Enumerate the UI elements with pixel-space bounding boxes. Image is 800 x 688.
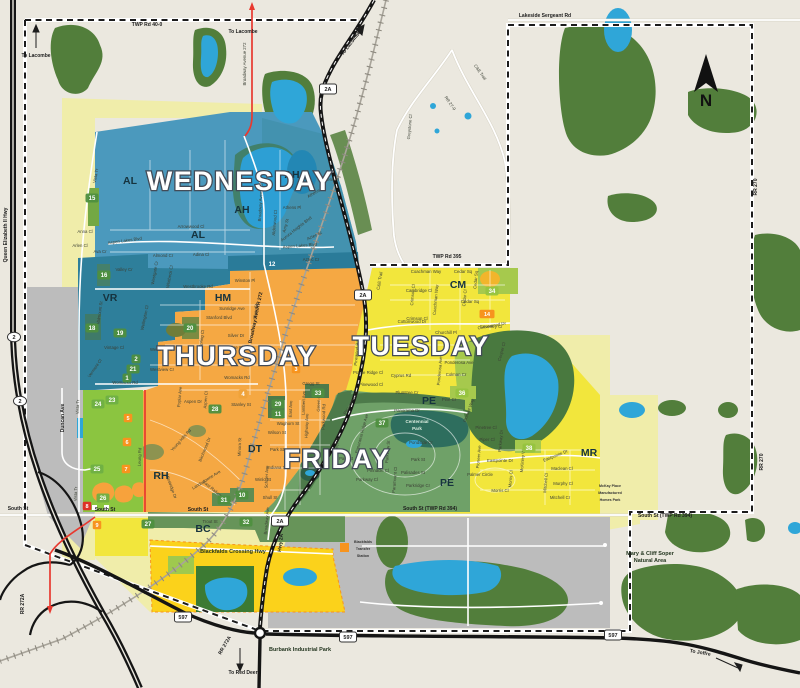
facility-badge-number: 7: [124, 467, 127, 473]
street-label: Ava Cr: [93, 249, 107, 254]
place-label: Station: [357, 554, 369, 558]
park-badge-number: 26: [100, 496, 107, 502]
park-badge-number: 37: [379, 421, 386, 427]
highway-shield-number: 2A: [359, 293, 366, 299]
place-label: Transfer: [356, 547, 371, 551]
street-label: Murphy Cl: [553, 481, 573, 486]
road-label: RR 270: [759, 453, 765, 470]
street-label: Coachman Way: [411, 269, 442, 274]
park-badge-number: 36: [459, 391, 466, 397]
map-canvas: N Vista TrAnna ClArlen ClAva CrAspen Lak…: [0, 0, 800, 688]
place-label: Centennial: [405, 419, 428, 424]
park-badge-number: 32: [243, 520, 250, 526]
street-label: Pine Cr: [442, 397, 457, 402]
zone-yellow-southwest: [95, 518, 148, 556]
road-label: South St: [95, 507, 116, 513]
street-label: Pinewood Cl: [359, 382, 383, 387]
street-label: Westbrooke Rd: [183, 284, 213, 289]
street-label: Silver Dr: [228, 333, 245, 338]
road-label: TWP Rd 40-0: [132, 22, 163, 28]
street-label: Piper Cl: [479, 437, 494, 442]
street-label: Palisades St: [401, 470, 426, 475]
place-label: Burbank Industrial Park: [269, 647, 332, 653]
area-code-label: PE: [440, 477, 454, 489]
street-label: Wilson St: [268, 430, 287, 435]
place-label: Blackfalds: [354, 540, 372, 544]
day-zone-label: WEDNESDAY: [147, 166, 334, 196]
street-label: Parkway Cl: [356, 477, 378, 482]
area-code-label: VR: [103, 292, 118, 304]
highway-shield-number: 597: [343, 635, 352, 641]
street-label: Stanford Blvd: [206, 315, 232, 320]
highway-shield-number: 597: [178, 615, 187, 621]
street-label: Eastpointe Dr: [487, 458, 514, 463]
street-label: Athens Pl: [283, 205, 301, 210]
facility-badge-number: 14: [484, 312, 491, 318]
park-badge-number: 27: [145, 522, 152, 528]
park-badge-number: 34: [489, 289, 496, 295]
street-label: Vista Tr: [75, 399, 81, 414]
highway-shield-number: 2A: [276, 519, 283, 525]
road-label: South St (TWP Rd 394): [403, 506, 457, 512]
road-label: Lakeside Sergeant Rd: [519, 13, 571, 19]
street-label: Womacks Rd: [224, 375, 250, 380]
park-badge-number: 20: [187, 326, 194, 332]
street-label: Vista Tr: [73, 486, 79, 501]
roundabout: [255, 628, 265, 638]
street-label: Mitchell Cr: [550, 495, 571, 500]
facility-badge-number: 9: [95, 523, 98, 529]
park-badge-number: 24: [95, 402, 102, 408]
street-label: Broadway Avenue 272: [242, 42, 247, 86]
street-label: Winston Pl: [235, 278, 256, 283]
street-label: Vintage Cl: [104, 345, 124, 350]
street-label: Minora St: [237, 437, 243, 456]
highway-shield-number: 2: [18, 399, 21, 405]
street-label: Park St: [411, 457, 426, 462]
area-code-label: CM: [450, 279, 467, 291]
facility-badge-number: 5: [126, 416, 129, 422]
street-label: Morris Cl: [491, 488, 508, 493]
transfer-station-icon: [340, 543, 349, 552]
street-label: Coventry Cl: [480, 324, 502, 329]
park-badge-number: 15: [89, 196, 96, 202]
compass-n-label: N: [700, 91, 712, 110]
place-label: Homes Park: [600, 498, 621, 502]
street-label: Maclean Cl: [551, 466, 573, 471]
street-label: East Ave: [288, 400, 294, 418]
highway-shield-number: 2: [12, 335, 15, 341]
place-label: Park: [412, 426, 422, 431]
park-badge-number: 38: [526, 446, 533, 452]
area-code-label: AL: [191, 229, 206, 241]
park-badge-number: 16: [101, 273, 108, 279]
street-label: Aztec Cr: [303, 257, 320, 262]
road-label: Queen Elizabeth II Hwy: [3, 207, 9, 262]
road-label: South St: [188, 507, 209, 513]
street-label: Parkridge Cr: [406, 483, 431, 488]
place-label: Mary & Cliff Soper: [626, 551, 675, 557]
park-badge-number: 33: [315, 391, 322, 397]
park-badge-number: 12: [269, 262, 276, 268]
street-label: Colman Cr: [446, 372, 467, 377]
area-code-label: HM: [215, 292, 232, 304]
street-label: Shull St: [263, 495, 279, 500]
blackfalds-collection-day-map: N Vista TrAnna ClArlen ClAva CrAspen Lak…: [0, 0, 800, 688]
direction-label: To Lacombe: [228, 29, 257, 35]
street-label: Anna Cl: [77, 229, 92, 234]
day-zone-label: THURSDAY: [157, 341, 317, 371]
street-label: Arlen Cl: [72, 243, 87, 248]
road-label: South St (TWP Rd 394): [638, 513, 692, 519]
day-zone-label: TUESDAY: [352, 331, 489, 361]
place-label: Natural Area: [634, 558, 667, 564]
park-badge-number: 29: [275, 402, 282, 408]
highway-shield-number: 2A: [324, 87, 331, 93]
park-badge-number: 10: [239, 493, 246, 499]
street-label: Leung Rd: [137, 447, 143, 466]
street-label: Waghorn St: [277, 421, 300, 426]
park-badge-number: 31: [221, 498, 228, 504]
street-label: Highway Ave: [304, 413, 310, 439]
street-label: Schuler Ave: [264, 465, 270, 489]
street-label: Pondside Cr: [409, 440, 433, 445]
street-label: Prairie Ridge Cl: [353, 370, 383, 375]
place-label: Blackfalds Crossing Hwy: [200, 549, 267, 555]
street-label: Cyprus Rd: [391, 373, 412, 378]
street-label: Cedar Sq: [454, 269, 473, 274]
street-label: Stanley St: [231, 402, 251, 407]
street-label: Lambert Ave: [301, 390, 307, 415]
park-badge-number: 28: [212, 407, 219, 413]
park-badge-number: 23: [109, 398, 116, 404]
road-label: TWP Rd 395: [433, 254, 462, 260]
street-label: Adina Cl: [193, 252, 209, 257]
street-label: Palmer Circle: [467, 472, 493, 477]
area-code-label: DT: [248, 443, 263, 455]
street-label: Parkwood Rd: [321, 403, 327, 430]
road-label: Duncan Ave: [60, 404, 66, 433]
park-badge-number: 25: [94, 467, 101, 473]
park-badge-number: 19: [117, 331, 124, 337]
street-label: Pinetree Cl: [475, 425, 496, 430]
direction-label: To Lacombe: [21, 53, 50, 59]
street-label: Gregg St: [302, 381, 320, 386]
area-code-label: RH: [153, 470, 168, 482]
area-code-label: AH: [234, 204, 249, 216]
road-label: RR 272A: [20, 593, 26, 614]
area-code-label: PE: [422, 395, 436, 407]
area-code-label: AL: [123, 175, 138, 187]
park-badge-number: 11: [275, 412, 282, 418]
street-label: Cottonwood Dr: [398, 319, 427, 324]
street-label: Sunridge Ave: [219, 306, 245, 311]
place-label: McKay Place: [599, 484, 621, 488]
area-code-label: MR: [581, 447, 598, 459]
street-label: Aspen Dr: [184, 399, 202, 404]
day-zone-label: FRIDAY: [283, 444, 390, 474]
street-label: Plumtree Cr: [396, 390, 419, 395]
place-label: Manufactured: [598, 491, 622, 495]
road-label: South St: [8, 506, 29, 512]
street-label: Valley Cr: [115, 267, 133, 272]
park-badge-number: 18: [89, 326, 96, 332]
street-label: Panorama Dr: [394, 408, 420, 413]
facility-badge-number: 6: [125, 440, 128, 446]
park-badge-number: 21: [130, 367, 137, 373]
facility-badge-number: 8: [85, 504, 88, 510]
road-label: RR 270: [753, 178, 759, 195]
direction-label: To Red Deer: [228, 670, 257, 676]
area-code-label: BC: [195, 523, 211, 535]
street-label: Almond Cr: [153, 253, 174, 258]
highway-shield-number: 597: [608, 633, 617, 639]
